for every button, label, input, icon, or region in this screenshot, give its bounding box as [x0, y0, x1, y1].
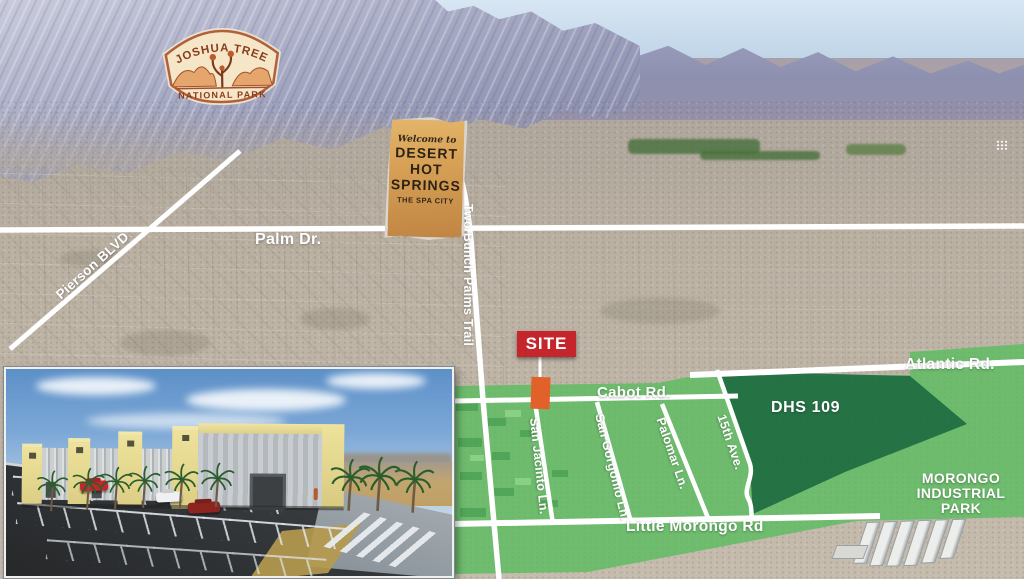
- road-label-cabot-rd: Cabot Rd.: [597, 384, 671, 401]
- building-rendering-inset: [4, 367, 454, 578]
- palm-tree-icon: [128, 462, 162, 512]
- desert-hot-springs-sign: Welcome to DESERT HOT SPRINGS THE SPA CI…: [384, 116, 467, 241]
- pylon-window: [76, 447, 83, 453]
- joshua-tree-national-park-badge: JOSHUA TREE NATIONAL PARK: [155, 25, 288, 111]
- site-flag: SITE: [517, 331, 576, 357]
- sign-line-springs: SPRINGS: [389, 176, 463, 194]
- parcel-label-morongo-industrial-park: MORONGO INDUSTRIAL PARK: [893, 471, 1024, 516]
- parcel-label-dhs109: DHS 109: [771, 399, 840, 417]
- pylon-window: [29, 453, 36, 459]
- cloud: [186, 389, 346, 411]
- morongo-line3: PARK: [893, 501, 1024, 516]
- sign-line-desert: DESERT: [389, 144, 463, 162]
- pylon-window: [182, 435, 189, 441]
- morongo-line1: MORONGO: [893, 471, 1024, 486]
- cloud: [326, 373, 426, 389]
- building-entry-door: [250, 474, 286, 510]
- sign-tagline: THE SPA CITY: [388, 195, 462, 206]
- morongo-line2: INDUSTRIAL: [893, 486, 1024, 501]
- palm-tree-icon: [394, 457, 436, 517]
- road-pierson-blvd: [10, 151, 240, 349]
- palm-tree-icon: [200, 458, 236, 512]
- pylon-window: [127, 441, 134, 447]
- road-label-atlantic-rd: Atlantic Rd.: [905, 356, 995, 374]
- person-figure: [314, 488, 318, 500]
- road-label-little-morongo-rd: Little Morongo Rd: [626, 518, 764, 536]
- palm-tree-icon: [164, 460, 200, 512]
- site-parcel-marker: [530, 377, 550, 410]
- sign-line-hot: HOT: [389, 160, 463, 178]
- road-label-palm-dr: Palm Dr.: [255, 231, 321, 249]
- aerial-site-map: Palm Dr. Pierson BLVD Two Bunch Palms Tr…: [0, 0, 1024, 579]
- cloud: [36, 377, 156, 395]
- palm-tree-icon: [36, 469, 70, 513]
- badge-subtitle: NATIONAL PARK: [178, 89, 267, 101]
